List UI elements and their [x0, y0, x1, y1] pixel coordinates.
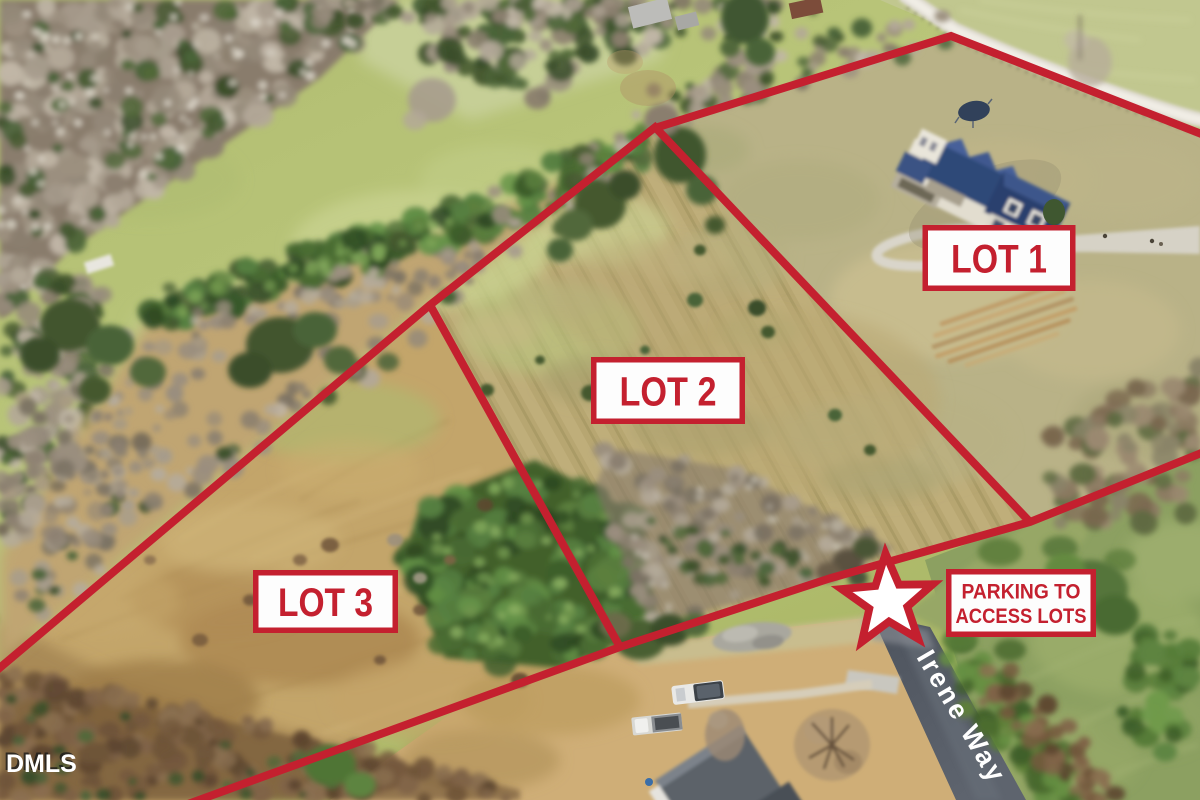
svg-text:DMLS: DMLS: [6, 750, 77, 778]
svg-text:LOT 1: LOT 1: [951, 237, 1047, 281]
svg-text:PARKING TO: PARKING TO: [962, 580, 1081, 603]
svg-text:ACCESS LOTS: ACCESS LOTS: [956, 605, 1087, 628]
svg-text:LOT 2: LOT 2: [620, 368, 717, 414]
svg-text:LOT 3: LOT 3: [278, 581, 373, 625]
